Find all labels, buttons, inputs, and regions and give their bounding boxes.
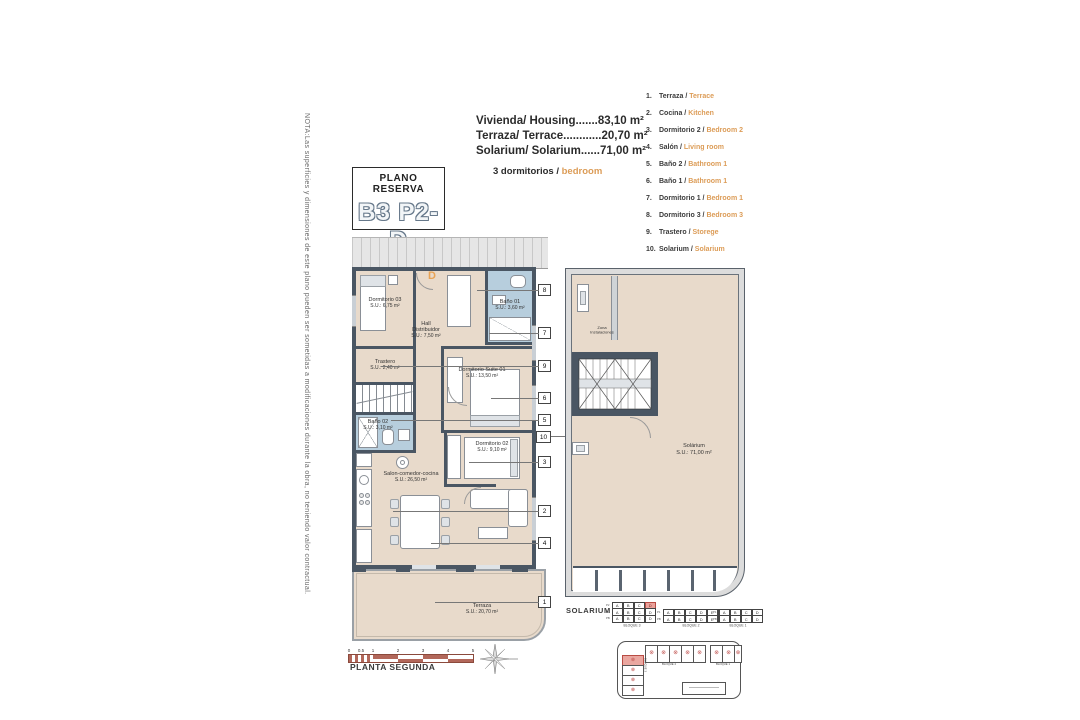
callout-8: 8	[538, 284, 551, 296]
wall	[444, 346, 532, 349]
callout-10: 10	[536, 431, 551, 443]
north-arrow-icon	[480, 644, 518, 674]
vent-inner-symbol	[576, 445, 585, 452]
room-label-hall: Hall DistribuidorS.U.: 7,50 m²	[408, 321, 444, 339]
key-table-cell: D	[752, 615, 764, 623]
terrace-pillar	[396, 567, 410, 572]
chair-symbol	[390, 517, 399, 527]
area-line-terrace: Terraza/ Terrace............20,70 m²	[476, 129, 648, 144]
terrace-pillar	[456, 567, 474, 572]
pergola-slat	[713, 570, 716, 591]
unit-marker-icon: ⊗	[649, 651, 654, 657]
area-summary: Vivienda/ Housing.......83,10 m² Terraza…	[476, 114, 648, 159]
key-table-bloque3: P2ABCDP1ABCDPBABCD	[606, 602, 656, 622]
solarium-caption: SOLARIUM	[566, 606, 611, 615]
roof-hatch	[352, 237, 548, 269]
window-symbol	[352, 295, 356, 327]
scale-tick: 0	[348, 648, 351, 653]
pergola-slat	[595, 570, 598, 591]
unit-marker-icon: ⊗	[697, 651, 702, 657]
wall	[356, 412, 416, 415]
hob-burner-icon	[365, 500, 370, 505]
installations-inner-symbol	[580, 291, 586, 305]
callout-5: 5	[538, 414, 551, 426]
room-label-salon: Salon-comedor-cocinaS.U.: 26,50 m²	[378, 471, 444, 483]
floor-plan-main: D	[352, 237, 548, 643]
unit-marker-icon: ⊗	[661, 651, 666, 657]
window-symbol	[532, 385, 536, 421]
scale-tick: 3	[422, 648, 425, 653]
door-swing-symbol	[630, 417, 651, 438]
unit-marker-icon: ⊗	[631, 688, 635, 693]
site-block2-caption: BLOQUE 2	[662, 662, 676, 666]
stairs-symbol	[356, 385, 413, 412]
window-symbol	[532, 325, 536, 361]
coffee-table-symbol	[478, 527, 508, 539]
solarium-floor: Zona Instalaciones	[571, 274, 739, 591]
kitchen-cabinet-symbol	[356, 529, 372, 563]
kitchen-sink-symbol	[359, 475, 369, 485]
legend-item: 4.Salón / Living room	[646, 144, 743, 161]
callout-7: 7	[538, 327, 551, 339]
room-legend: 1.Terraza / Terrace 2.Cocina / Kitchen 3…	[646, 93, 743, 263]
key-table-cell: C	[685, 615, 697, 623]
site-unit: ⊗	[622, 685, 644, 696]
legend-item: 3.Dormitorio 2 / Bedroom 2	[646, 127, 743, 144]
unit-marker-icon: ⊗	[714, 651, 719, 657]
room-label-dorm02: Dormitorio 02S.U.: 9,10 m²	[464, 441, 520, 453]
legend-item: 5.Baño 2 / Bathroom 1	[646, 161, 743, 178]
site-plan: ⊗ ⊗ ⊗ ⊗ ⊗ BLOQUE 2 ⊗ ⊗ ⊗ BLOQUE 1 ⊗ ⊗ ⊗ …	[617, 641, 741, 699]
toilet-symbol	[382, 429, 394, 445]
key-table-cell: D	[645, 615, 657, 623]
solarium-room-label: SoláriumS.U.: 71,00 m²	[664, 443, 724, 456]
callout-9: 9	[538, 360, 551, 372]
area-line-solarium: Solarium/ Solarium......71,00 m²	[476, 144, 648, 159]
callout-3: 3	[538, 456, 551, 468]
scale-tick: 2	[397, 648, 400, 653]
site-block1-caption: BLOQUE 1	[716, 662, 730, 666]
unit-marker-icon: ⊗	[631, 658, 635, 663]
pillow-symbol	[360, 275, 386, 287]
wardrobe-symbol	[447, 275, 471, 327]
legend-item: 7.Dormitorio 1 / Bedroom 1	[646, 195, 743, 212]
room-label-suite01: Dormitorio Suite 01S.U.: 13,50 m²	[452, 367, 512, 379]
unit-marker-icon: ⊗	[673, 651, 678, 657]
key-table-cell: B	[730, 615, 742, 623]
solarium-plan: Zona Instalaciones	[565, 268, 745, 597]
key-table-cell: A	[719, 615, 731, 623]
key-table-cell: B	[674, 615, 686, 623]
callout-1: 1	[538, 596, 551, 608]
legend-item: 9.Trastero / Storege	[646, 229, 743, 246]
bedrooms-line: 3 dormitorios / bedroom	[493, 166, 602, 177]
key-table-row-label: PB	[657, 616, 662, 621]
key-table-cell: A	[663, 615, 675, 623]
callout-6: 6	[538, 392, 551, 404]
chair-symbol	[441, 517, 450, 527]
fridge-symbol	[356, 453, 372, 467]
wardrobe-symbol	[447, 435, 461, 479]
key-table-caption: BLOQUE 3	[615, 623, 649, 627]
hob-burner-icon	[365, 493, 370, 498]
key-table-row-label: PB	[606, 616, 611, 621]
chair-symbol	[390, 535, 399, 545]
scale-tick: 4	[447, 648, 450, 653]
callout-2: 2	[538, 505, 551, 517]
key-table-row-label: P2	[606, 603, 611, 608]
wall	[413, 349, 416, 453]
wall	[444, 430, 532, 433]
pergola-slat	[643, 570, 646, 591]
key-table-row-label: PB	[713, 616, 718, 621]
key-table-cell: D	[696, 615, 708, 623]
wall	[488, 342, 532, 345]
unit-marker-icon: ⊗	[631, 668, 635, 673]
pergola-area	[573, 566, 737, 592]
key-table-cell: B	[623, 615, 635, 623]
site-block3-caption: BLOQUE 3	[644, 658, 648, 672]
dining-table-symbol	[400, 495, 440, 549]
unit-marker-icon: ⊗	[685, 651, 690, 657]
unit-marker-icon: ⊗	[631, 678, 635, 683]
disclaimer-note: NOTA:Las superficies y dimensiones de es…	[303, 113, 310, 635]
pergola-slat	[667, 570, 670, 591]
site-unit: ⊗	[693, 645, 706, 663]
wall	[356, 346, 416, 349]
chair-symbol	[441, 499, 450, 509]
callout-4: 4	[538, 537, 551, 549]
zona-instalaciones-label: Zona Instalaciones	[584, 326, 620, 335]
room-label-bano01: Baño 01S.U.: 3,60 m²	[490, 299, 530, 311]
key-table-row-label: P1	[657, 610, 662, 615]
toilet-symbol	[510, 275, 526, 288]
hob-burner-icon	[359, 500, 364, 505]
site-unit: ⊗	[734, 645, 742, 663]
floor-plan-sheet: NOTA:Las superficies y dimensiones de es…	[0, 0, 1080, 720]
pergola-slat	[691, 570, 694, 591]
sofa-chaise-symbol	[508, 489, 528, 527]
stairwell-symbol	[572, 352, 658, 416]
terrace-pillar	[512, 567, 528, 572]
legend-item: 2.Cocina / Kitchen	[646, 110, 743, 127]
wall	[444, 484, 496, 487]
key-table-caption: BLOQUE 1	[721, 623, 755, 627]
key-table-cell: C	[741, 615, 753, 623]
wall	[485, 271, 488, 345]
scale-tick: 0.5	[358, 648, 364, 653]
chair-symbol	[390, 499, 399, 509]
terrace-area	[352, 569, 546, 641]
key-table-bloque1: P1ABCDPBABCD	[713, 609, 763, 622]
scale-tick: 5	[472, 648, 475, 653]
legend-item: 1.Terraza / Terrace	[646, 93, 743, 110]
title-box: PLANO RESERVA B3 P2-D	[352, 167, 445, 230]
legend-item: 6.Baño 1 / Bathroom 1	[646, 178, 743, 195]
window-symbol	[532, 497, 536, 541]
sink-symbol	[398, 429, 410, 441]
pillow-symbol	[470, 415, 520, 427]
room-label-terraza: TerrazaS.U.: 20,70 m²	[452, 603, 512, 615]
key-table-caption: BLOQUE 2	[671, 623, 710, 627]
unit-marker-icon: ⊗	[726, 651, 731, 657]
pool-symbol	[682, 682, 726, 695]
key-table-cell: C	[634, 615, 646, 623]
unit-marker-icon: ⊗	[736, 651, 741, 657]
room-label-dorm03: Dormitorio 03S.U.: 6,75 m²	[360, 297, 410, 309]
key-table-row-label: P1	[713, 610, 718, 615]
terrace-pillar	[352, 567, 366, 572]
area-line-housing: Vivienda/ Housing.......83,10 m²	[476, 114, 648, 129]
washer-drum-symbol	[400, 460, 405, 465]
legend-item: 8.Dormitorio 3 / Bedroom 3	[646, 212, 743, 229]
nightstand-symbol	[388, 275, 398, 285]
shower-symbol	[489, 317, 531, 341]
scale-tick: 1	[372, 648, 375, 653]
floor-caption: PLANTA SEGUNDA	[350, 662, 435, 672]
key-table-cell: A	[612, 615, 624, 623]
legend-item: 10.Solarium / Solarium	[646, 246, 743, 263]
pergola-slat	[619, 570, 622, 591]
key-table-row-label: P1	[606, 609, 611, 614]
room-label-trastero: TrasteroS.U.: 2,40 m²	[362, 359, 408, 371]
plano-reserva-label: PLANO RESERVA	[353, 173, 444, 195]
hob-burner-icon	[359, 493, 364, 498]
